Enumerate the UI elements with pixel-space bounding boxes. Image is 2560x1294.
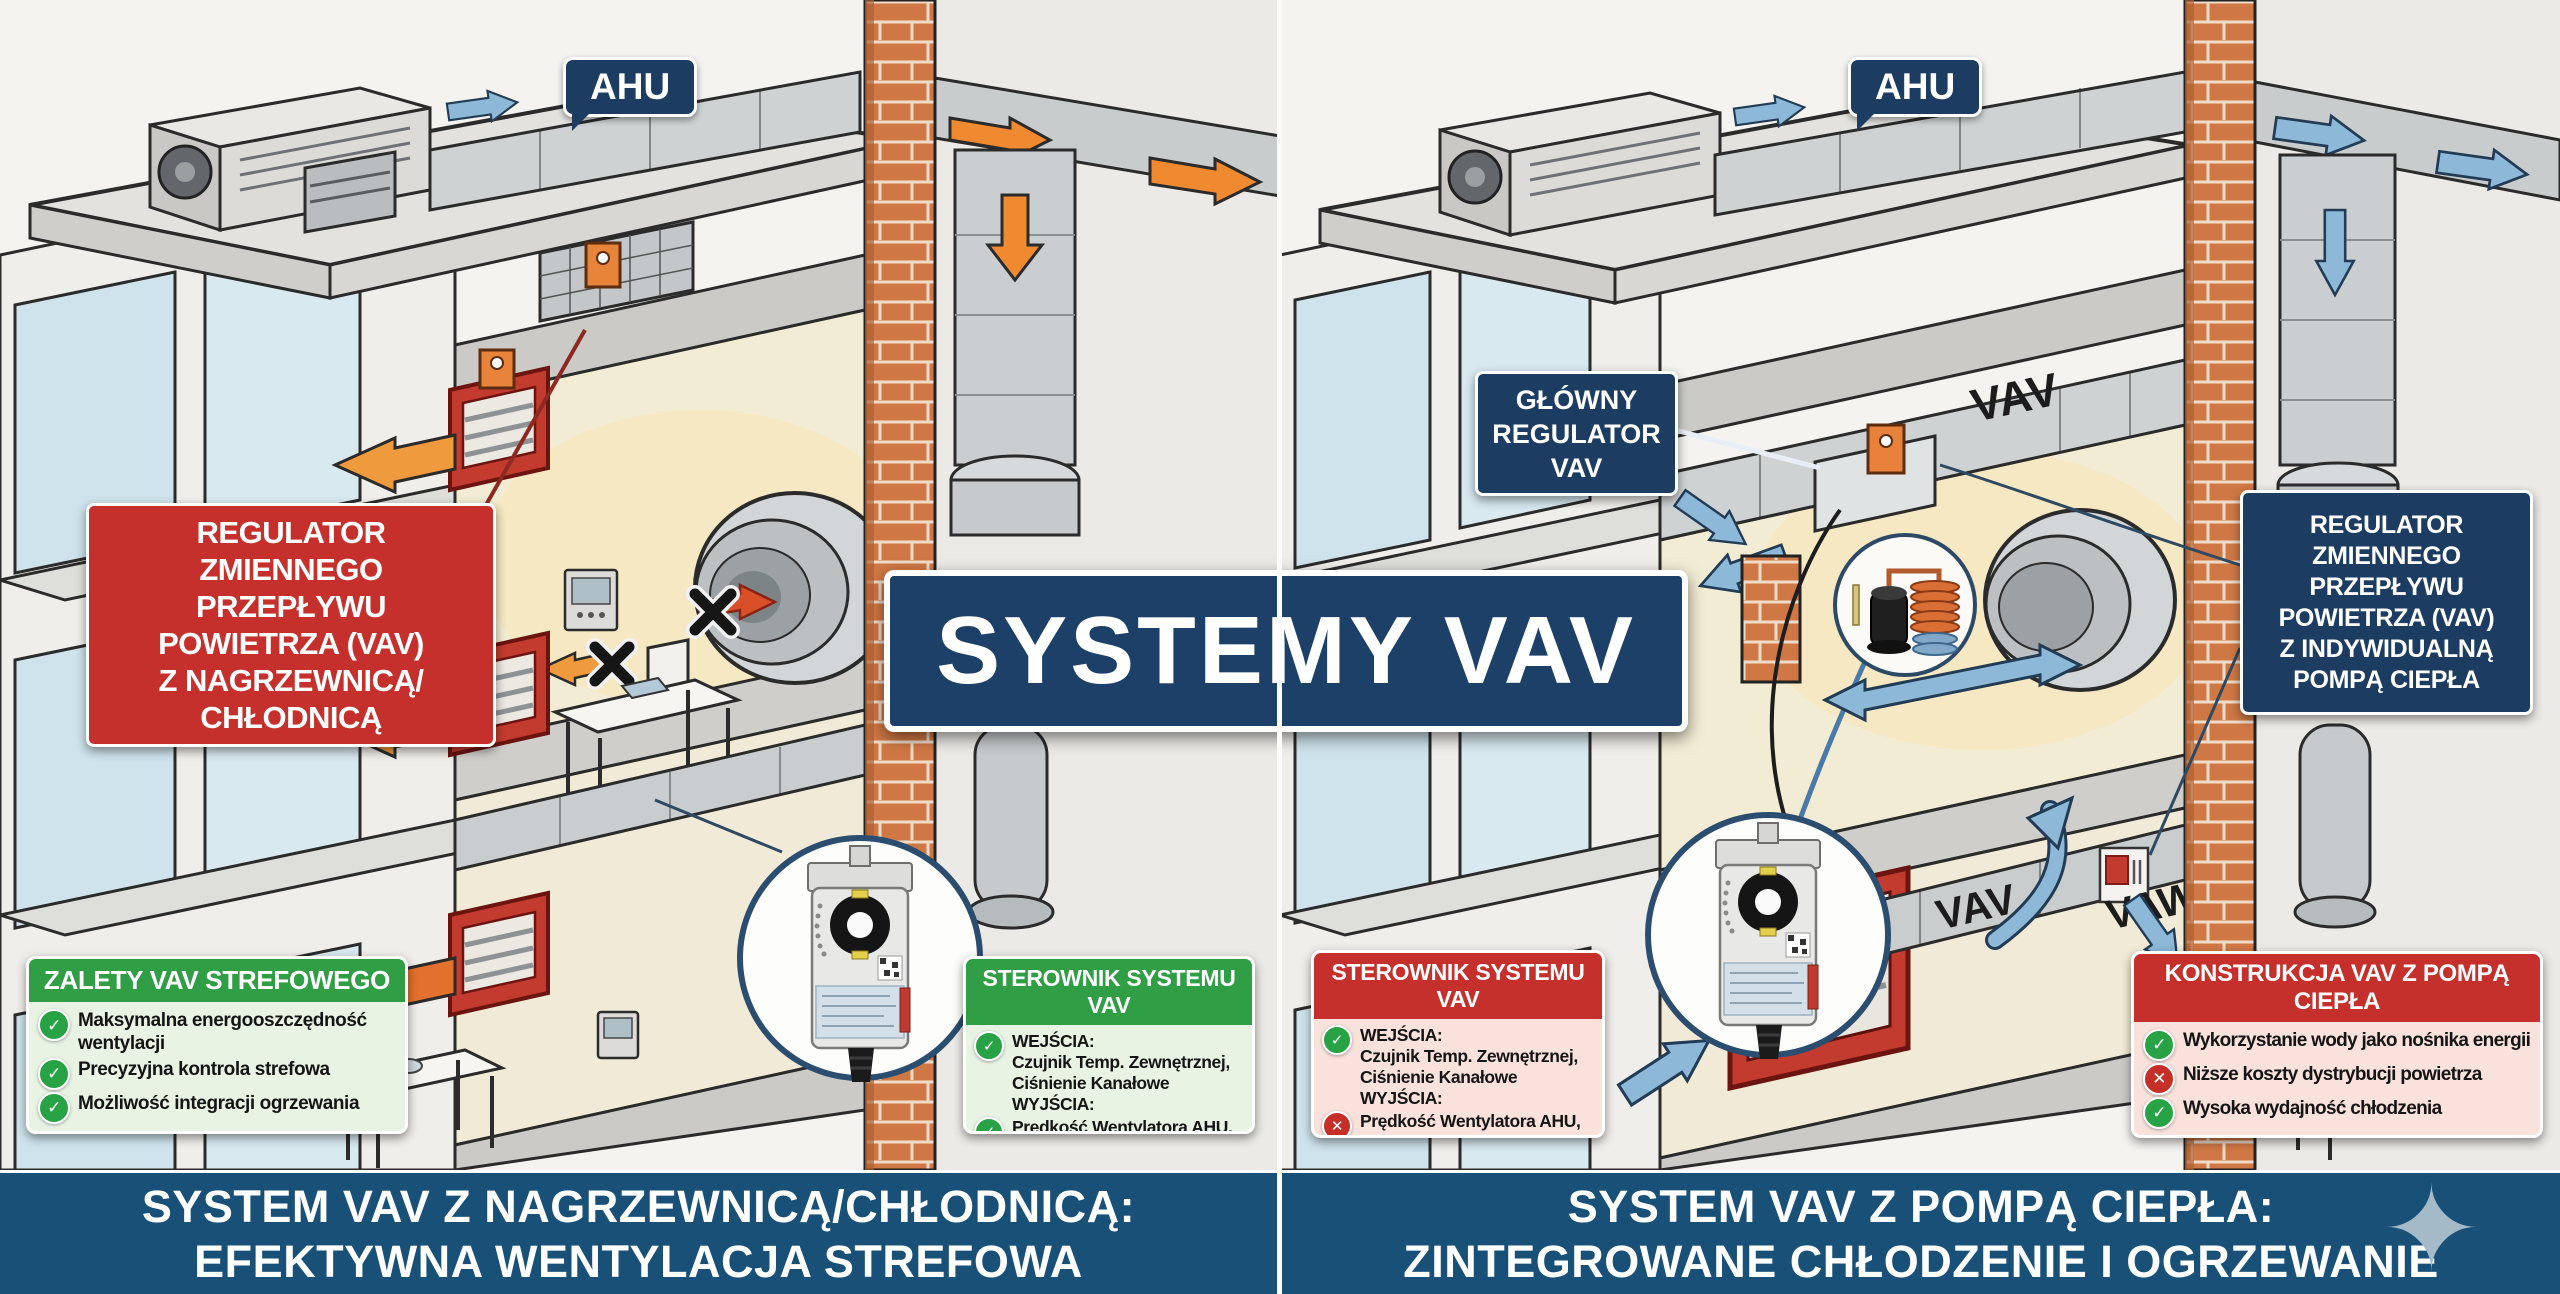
list-item: ✓ WEJŚCIA: Czujnik Temp. Zewnętrznej, Ci…: [974, 1031, 1244, 1115]
banner-line: EFEKTYWNA WENTYLACJA STREFOWA: [0, 1234, 1277, 1289]
actuator-inset: [740, 838, 980, 1082]
list-item: ✓ Możliwość integracji ogrzewania: [38, 1092, 396, 1124]
check-icon: ✓: [974, 1031, 1004, 1061]
bubble-tail: [1857, 109, 1879, 131]
banner-line: SYSTEM VAV Z NAGRZEWNICĄ/CHŁODNICĄ:: [0, 1179, 1277, 1234]
sparkle-icon: ✦: [2382, 1168, 2481, 1292]
check-icon: ✓: [38, 1092, 70, 1124]
main-regulator-label: GŁÓWNY REGULATOR VAV: [1475, 371, 1678, 496]
main-title-banner: SYSTEMY VAV: [884, 570, 1688, 732]
list-item: ✓ Wykorzystanie wody jako nośnika energi…: [2143, 1029, 2531, 1061]
bottom-banner-left: SYSTEM VAV Z NAGRZEWNICĄ/CHŁODNICĄ: EFEK…: [0, 1170, 1277, 1294]
check-icon: ✓: [2143, 1029, 2175, 1061]
ahu-label-left: AHU: [563, 57, 697, 117]
controller-title: STEROWNIK SYSTEMU VAV: [966, 959, 1252, 1025]
list-item: ✕ Prędkość Wentylatora AHU, Siłownik Prz…: [1322, 1111, 1594, 1138]
callout-vav-heat-pump: REGULATOR ZMIENNEGO PRZEPŁYWU POWIETRZA …: [2240, 490, 2533, 715]
thermostat: [565, 570, 617, 630]
callout-vav-with-coil: REGULATOR ZMIENNEGO PRZEPŁYWU POWIETRZA …: [86, 503, 496, 747]
ahu-label-right: AHU: [1848, 57, 1982, 117]
panel-divider: [1277, 0, 1282, 1294]
main-title: SYSTEMY VAV: [936, 596, 1636, 706]
construction-box: KONSTRUKCJA VAV Z POMPĄ CIEPŁA ✓ Wykorzy…: [2131, 951, 2543, 1138]
controller-box-right: STEROWNIK SYSTEMU VAV ✓ WEJŚCIA: Czujnik…: [1311, 950, 1605, 1138]
banner-line: ZINTEGROWANE CHŁODZENIE I OGRZEWANIE: [1282, 1234, 2560, 1289]
controller-box-left: STEROWNIK SYSTEMU VAV ✓ WEJŚCIA: Czujnik…: [963, 956, 1255, 1134]
cross-icon: ✕: [1322, 1111, 1352, 1138]
controller-title: STEROWNIK SYSTEMU VAV: [1314, 953, 1602, 1019]
in-room-brick-column: [1742, 556, 1800, 682]
list-item: ✓ WEJŚCIA: Czujnik Temp. Zewnętrznej, Ci…: [1322, 1025, 1594, 1109]
advantages-title: ZALETY VAV STREFOWEGO: [29, 959, 405, 1002]
cross-icon: ✕: [2143, 1063, 2175, 1095]
actuator-inset: [1648, 815, 1888, 1059]
list-item: ✕ Niższe koszty dystrybucji powietrza: [2143, 1063, 2531, 1095]
list-item: ✓ Maksymalna energooszczędność wentylacj…: [38, 1009, 396, 1055]
list-item: ✓ Wysoka wydajność chłodzenia: [2143, 1097, 2531, 1129]
heat-pump-inset: [1835, 535, 1975, 675]
check-icon: ✓: [38, 1009, 70, 1041]
construction-title: KONSTRUKCJA VAV Z POMPĄ CIEPŁA: [2134, 954, 2540, 1022]
check-icon: ✓: [38, 1058, 70, 1090]
infographic-canvas: VAV: [0, 0, 2560, 1294]
banner-line: SYSTEM VAV Z POMPĄ CIEPŁA:: [1282, 1179, 2560, 1234]
check-icon: ✓: [974, 1117, 1004, 1134]
bottom-banner-right: SYSTEM VAV Z POMPĄ CIEPŁA: ZINTEGROWANE …: [1282, 1170, 2560, 1294]
check-icon: ✓: [1322, 1025, 1352, 1055]
check-icon: ✓: [2143, 1097, 2175, 1129]
advantages-box: ZALETY VAV STREFOWEGO ✓ Maksymalna energ…: [26, 956, 408, 1134]
bubble-tail: [572, 109, 594, 131]
list-item: ✓ Precyzyjna kontrola strefowa: [38, 1058, 396, 1090]
list-item: ✓ Prędkość Wentylatora AHU, Siłownik Prz…: [974, 1117, 1244, 1134]
